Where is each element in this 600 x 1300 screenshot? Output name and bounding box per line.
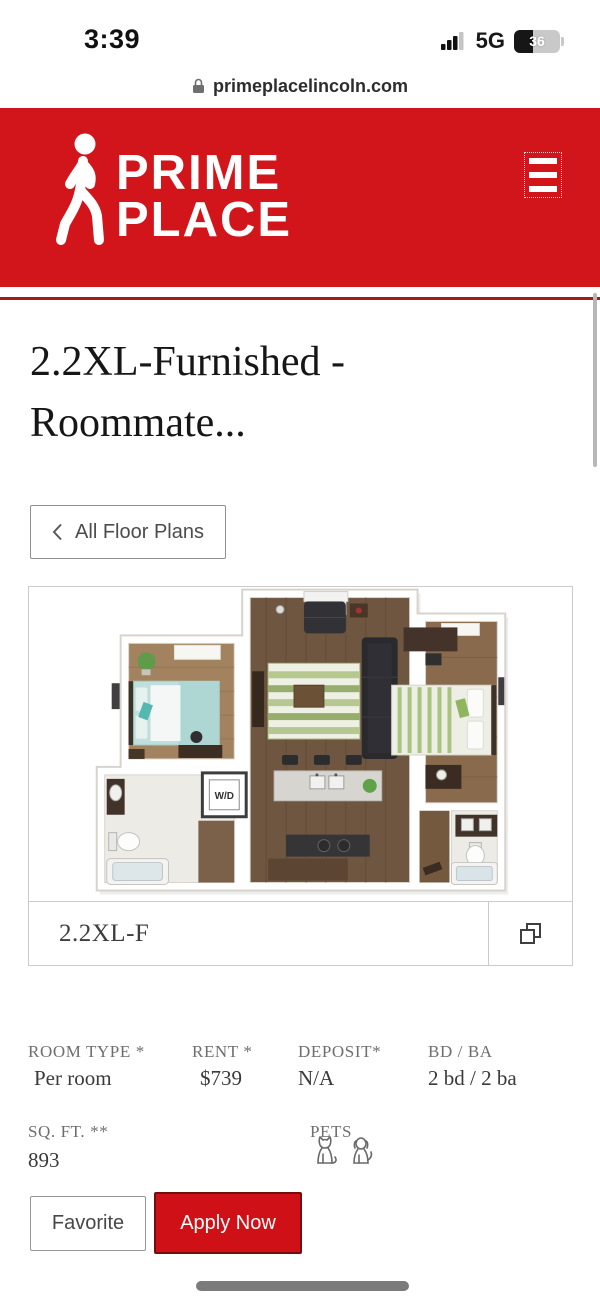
cat-icon (310, 1136, 340, 1166)
clock: 3:39 (84, 24, 140, 55)
logo-line-1: PRIME (116, 150, 292, 197)
page-title: 2.2XL-Furnished - Roommate... (30, 332, 345, 454)
all-floor-plans-button[interactable]: All Floor Plans (30, 505, 226, 559)
site-header: PRIME PLACE (0, 108, 600, 287)
room-type-label: ROOM TYPE * (28, 1042, 145, 1062)
site-logo[interactable]: PRIME PLACE (52, 130, 292, 248)
expand-plan-button[interactable] (488, 902, 572, 965)
scrollbar-thumb[interactable] (593, 293, 597, 467)
copy-icon (519, 922, 543, 946)
plan-name: 2.2XL-F (29, 902, 488, 965)
pets-icons (310, 1136, 376, 1166)
sq-ft-label: SQ. FT. ** (28, 1122, 108, 1142)
deposit-value: N/A (298, 1066, 334, 1091)
chevron-left-icon (52, 523, 63, 541)
floor-plan-card: W/D 2.2XL-F (28, 586, 573, 966)
page-title-line-1: 2.2XL-Furnished - (30, 332, 345, 393)
home-indicator[interactable] (196, 1281, 409, 1291)
lock-icon (192, 78, 205, 94)
favorite-button[interactable]: Favorite (30, 1196, 146, 1251)
bd-ba-value: 2 bd / 2 ba (428, 1066, 517, 1091)
rent-value: $739 (200, 1066, 242, 1091)
dog-icon (346, 1136, 376, 1166)
menu-hamburger-icon[interactable] (524, 152, 562, 198)
header-divider (0, 297, 600, 300)
battery-percent: 36 (514, 30, 560, 53)
address-bar[interactable]: primeplacelincoln.com (0, 70, 600, 102)
wd-closet-label: W/D (215, 791, 234, 802)
status-icons: 5G 36 (441, 28, 564, 54)
page-title-line-2: Roommate... (30, 393, 345, 454)
status-bar: 3:39 5G 36 (0, 0, 600, 62)
network-type-label: 5G (476, 28, 505, 54)
url-domain: primeplacelincoln.com (213, 76, 408, 97)
room-type-value: Per room (34, 1066, 112, 1091)
all-floor-plans-label: All Floor Plans (75, 521, 204, 544)
sq-ft-value: 893 (28, 1148, 60, 1173)
rent-label: RENT * (192, 1042, 252, 1062)
deposit-label: DEPOSIT* (298, 1042, 381, 1062)
cellular-signal-icon (441, 32, 467, 50)
bd-ba-label: BD / BA (428, 1042, 493, 1062)
logo-wordmark: PRIME PLACE (116, 150, 292, 244)
favorite-button-label: Favorite (52, 1212, 124, 1235)
plan-caption-row: 2.2XL-F (29, 901, 572, 965)
mobile-screen: 3:39 5G 36 primeplacelincoln.com (0, 0, 600, 1300)
apply-now-button-label: Apply Now (180, 1212, 276, 1235)
floor-plan-image: W/D (29, 587, 572, 901)
walking-person-icon (52, 130, 108, 248)
battery-icon: 36 (514, 30, 564, 53)
apply-now-button[interactable]: Apply Now (154, 1192, 302, 1254)
logo-line-2: PLACE (116, 197, 292, 244)
